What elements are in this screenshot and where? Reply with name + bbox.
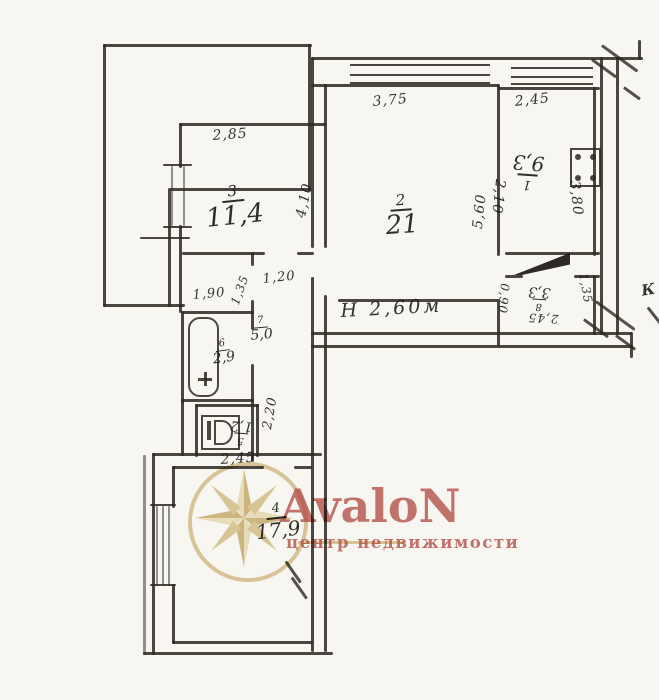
hatch-mark: [647, 306, 659, 336]
wall-segment: [179, 123, 182, 168]
dimension-room2-top: 3,75: [372, 91, 408, 110]
window-icon: [183, 166, 185, 226]
dimension-room1-left: 2,10: [488, 178, 508, 215]
hatch-mark: [591, 58, 617, 78]
window-icon: [171, 166, 173, 226]
room-number: 5: [233, 433, 248, 446]
room-area: 21: [385, 210, 420, 241]
window-icon: [162, 506, 164, 586]
wall-segment: [103, 44, 106, 307]
window-icon: [511, 67, 593, 85]
room-8-label: 8 3,3: [527, 283, 551, 312]
wall-segment: [505, 252, 600, 255]
wall-segment: [600, 57, 603, 335]
room-5-label: 5 1,2: [229, 417, 253, 446]
room-3-label: 3 11,4: [203, 180, 266, 234]
room-area: 17,9: [255, 517, 302, 544]
window-icon: [168, 506, 170, 586]
wall-segment: [497, 84, 500, 256]
wall-segment: [256, 404, 259, 457]
window-icon: [156, 506, 158, 586]
room-4-label: 4 17,9: [253, 500, 301, 543]
wall-segment: [143, 455, 146, 655]
dimension-room1-top: 2,45: [514, 90, 551, 110]
wall-segment: [150, 504, 176, 506]
room-7-label: 7 5,0: [249, 314, 274, 344]
window-icon: [350, 64, 490, 84]
wall-segment: [163, 226, 192, 228]
wall-segment: [103, 44, 312, 47]
wall-segment: [172, 584, 175, 644]
watermark-underline: [298, 541, 406, 544]
wall-segment: [181, 399, 184, 456]
wall-segment: [163, 164, 192, 166]
wall-segment: [251, 364, 254, 462]
room-number: 1: [516, 173, 537, 191]
room-2-label: 2 21: [383, 191, 419, 241]
dimension-room8-left: 0,90: [495, 283, 512, 315]
wall-segment: [195, 404, 259, 407]
wall-segment: [311, 57, 314, 248]
wall-segment: [324, 84, 327, 248]
dimension-room6-top: 1,90: [192, 285, 226, 303]
ceiling-height-note: Н 2,60м: [340, 295, 443, 322]
agency-watermark: AvaloN центр недвижимости: [0, 0, 659, 700]
room-area: 5,0: [250, 327, 274, 344]
wall-segment: [182, 311, 254, 314]
floor-plan-scan: 1 9,3 2 21 3 11,4 4 17,9 5 1,2 6 2,9 7 5…: [0, 0, 659, 700]
agency-tagline: центр недвижимости: [286, 533, 519, 552]
wall-segment: [143, 652, 333, 655]
wall-segment: [324, 295, 327, 652]
wall-segment: [140, 237, 190, 239]
room-area: 3,3: [528, 283, 551, 300]
corner-letter: К: [640, 279, 658, 299]
wall-segment: [311, 332, 632, 335]
room-area: 2,9: [212, 349, 236, 367]
room-area: 1,2: [230, 417, 253, 434]
wall-segment: [181, 311, 184, 403]
wall-segment: [150, 584, 176, 586]
wall-segment: [172, 466, 175, 508]
wall-segment: [172, 641, 313, 644]
dimension-room6-side: 1,35: [228, 273, 252, 307]
wall-segment: [297, 252, 314, 255]
wall-segment: [195, 404, 198, 457]
room-1-label: 1 9,3: [511, 151, 545, 192]
bathtub-tap-icon: [198, 378, 212, 381]
wall-segment: [172, 466, 264, 469]
dimension-room2-right: 5,60: [470, 193, 490, 230]
dimension-room8-bottom: 2,45: [527, 310, 558, 326]
wall-segment: [311, 345, 632, 348]
wall-segment: [638, 40, 641, 60]
dimension-room3-top: 2,85: [212, 126, 248, 144]
wall-segment: [294, 466, 312, 469]
wall-segment: [182, 399, 254, 402]
room-area: 9,3: [512, 151, 545, 175]
wall-segment: [311, 84, 499, 87]
room-area: 11,4: [205, 199, 266, 233]
dimension-room4-top: 2,45: [220, 450, 256, 468]
dimension-room7-side: 2,20: [260, 396, 280, 431]
wall-segment: [179, 123, 326, 126]
room-6-label: 6 2,9: [210, 337, 236, 368]
wall-segment: [616, 57, 619, 335]
dimension-room7-top: 1,20: [262, 269, 296, 287]
agency-brand-name: AvaloN: [280, 479, 461, 533]
wall-segment: [505, 275, 523, 278]
wall-segment: [103, 304, 185, 307]
wall-segment: [251, 252, 254, 266]
toilet-icon: [207, 421, 211, 440]
hatch-mark: [623, 86, 641, 100]
wall-segment: [152, 453, 155, 655]
door-leaf-icon: [514, 253, 570, 275]
